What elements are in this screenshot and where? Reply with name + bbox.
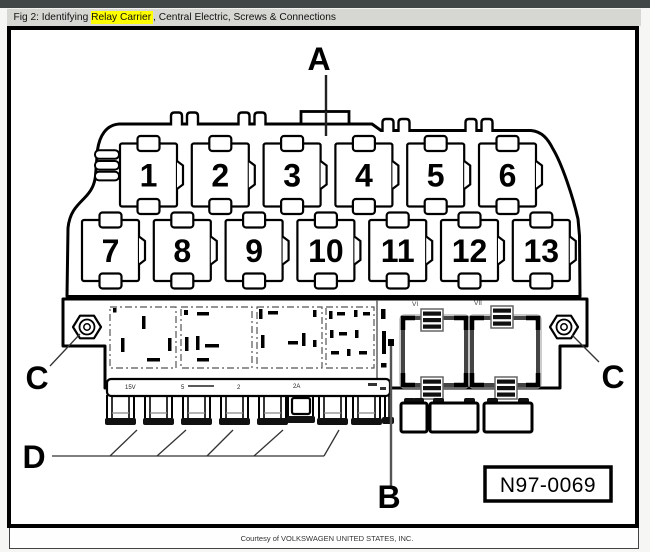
svg-text:N97-0069: N97-0069 xyxy=(500,474,596,497)
svg-text:VII: VII xyxy=(474,300,482,307)
svg-text:6: 6 xyxy=(499,158,517,194)
svg-text:3: 3 xyxy=(283,158,301,194)
svg-text:4: 4 xyxy=(355,158,373,194)
svg-text:8: 8 xyxy=(173,233,191,269)
svg-text:C: C xyxy=(601,359,624,395)
svg-text:2A: 2A xyxy=(293,384,300,390)
svg-text:5: 5 xyxy=(427,158,445,194)
svg-text:15V: 15V xyxy=(125,385,136,391)
svg-text:1: 1 xyxy=(140,158,158,194)
svg-text:11: 11 xyxy=(381,233,415,269)
svg-text:B: B xyxy=(377,479,400,515)
svg-text:A: A xyxy=(307,41,330,77)
svg-text:2: 2 xyxy=(211,158,229,194)
svg-text:C: C xyxy=(25,360,48,396)
svg-text:VI: VI xyxy=(412,301,418,308)
svg-text:7: 7 xyxy=(102,233,120,269)
svg-text:9: 9 xyxy=(245,233,263,269)
svg-text:12: 12 xyxy=(452,233,488,269)
svg-text:D: D xyxy=(22,439,45,475)
svg-text:13: 13 xyxy=(524,233,560,269)
svg-text:10: 10 xyxy=(308,233,344,269)
